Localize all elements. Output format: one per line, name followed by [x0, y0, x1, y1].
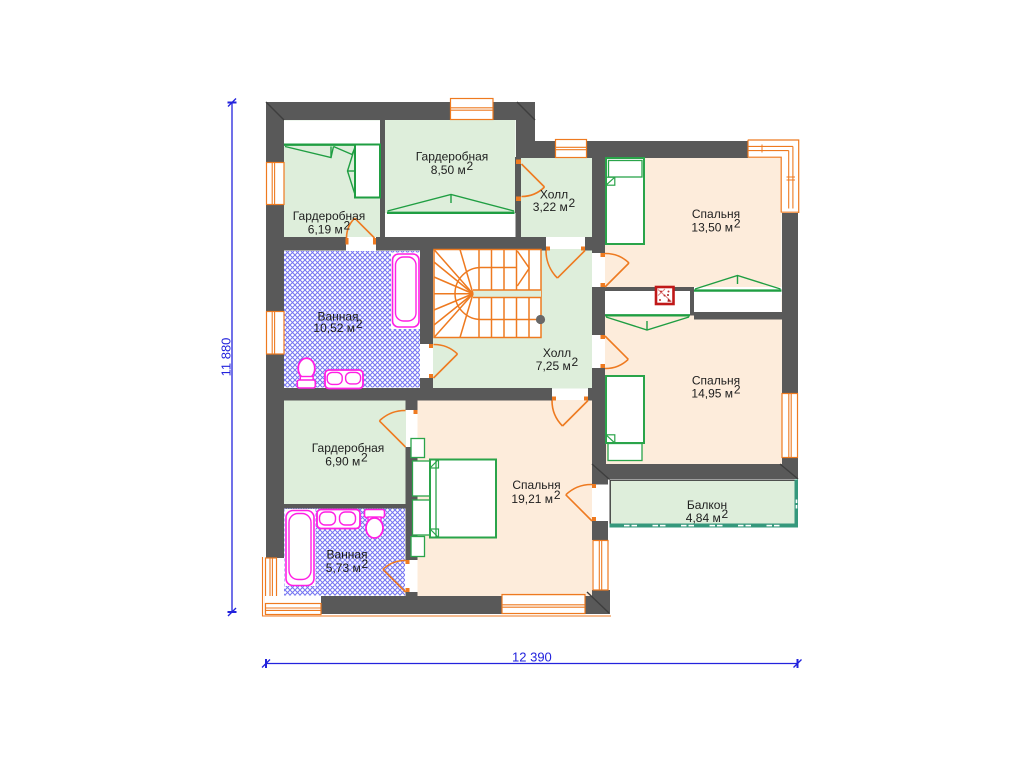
svg-text:Гардеробная: Гардеробная — [312, 441, 385, 455]
svg-text:12 390: 12 390 — [512, 650, 552, 665]
svg-text:Гардеробная: Гардеробная — [293, 209, 366, 223]
svg-text:11 880: 11 880 — [219, 338, 234, 377]
svg-text:Спальня: Спальня — [692, 374, 740, 388]
svg-text:Холл: Холл — [543, 346, 571, 360]
svg-text:Гардеробная: Гардеробная — [416, 150, 489, 164]
svg-text:Спальня: Спальня — [692, 207, 740, 221]
